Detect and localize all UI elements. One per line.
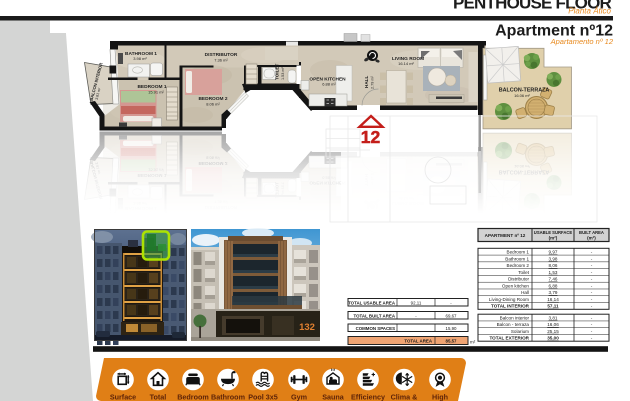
svg-text:3,98: 3,98 [549, 256, 558, 261]
svg-text:COMMON SPACES: COMMON SPACES [356, 326, 396, 331]
svg-text:6,88: 6,88 [549, 283, 558, 288]
svg-text:TOTAL AREA: TOTAL AREA [404, 339, 432, 344]
svg-text:16.06 m²: 16.06 m² [514, 93, 530, 98]
svg-text:Solarium: Solarium [511, 329, 529, 334]
svg-text:HALL: HALL [364, 76, 369, 88]
svg-text:TOTAL INTERIOR: TOTAL INTERIOR [491, 304, 530, 309]
svg-text:Bathroom: Bathroom [211, 393, 245, 401]
svg-text:APARTMENT nº 12: APARTMENT nº 12 [485, 233, 526, 238]
svg-text:15.91 m²: 15.91 m² [148, 90, 164, 95]
svg-text:Total: Total [150, 393, 167, 401]
svg-text:Bedroom: Bedroom [177, 393, 209, 401]
svg-text:7,46: 7,46 [549, 277, 558, 282]
svg-text:(m²): (m²) [587, 236, 596, 241]
svg-text:Toilet: Toilet [518, 270, 529, 275]
svg-text:57,11: 57,11 [547, 304, 559, 309]
svg-text:85,57: 85,57 [446, 339, 458, 344]
svg-text:Open kitchen: Open kitchen [502, 283, 530, 288]
svg-text:12: 12 [361, 127, 381, 147]
svg-text:3.98 m²: 3.98 m² [133, 56, 147, 61]
svg-text:3,81: 3,81 [549, 315, 558, 320]
svg-text:TOTAL EXTERIOR: TOTAL EXTERIOR [489, 336, 529, 341]
svg-text:m²: m² [470, 340, 476, 345]
svg-text:TOILET: TOILET [275, 64, 280, 80]
svg-text:Pool 3x5: Pool 3x5 [248, 393, 278, 401]
svg-text:9,97: 9,97 [549, 249, 558, 254]
svg-text:TOTAL USABLE AREA: TOTAL USABLE AREA [348, 300, 396, 305]
svg-text:92,11: 92,11 [411, 300, 422, 305]
svg-text:16,14: 16,14 [547, 297, 559, 302]
svg-text:Bathroom 1: Bathroom 1 [505, 256, 529, 261]
svg-text:Living-Dining Room: Living-Dining Room [489, 297, 529, 302]
svg-text:3,79: 3,79 [549, 290, 558, 295]
svg-text:USABLE SURFACE: USABLE SURFACE [534, 230, 573, 235]
svg-text:Planta Ático: Planta Ático [568, 7, 611, 16]
svg-text:Balcon - terraza: Balcon - terraza [497, 322, 530, 327]
svg-text:Apartamento nº 12: Apartamento nº 12 [550, 37, 614, 46]
svg-text:69,67: 69,67 [446, 313, 458, 318]
svg-text:Efficiency: Efficiency [351, 393, 385, 401]
svg-text:35,00: 35,00 [547, 336, 559, 341]
svg-text:Surface: Surface [110, 393, 136, 401]
svg-text:Hall: Hall [521, 290, 529, 295]
svg-text:1,53: 1,53 [549, 270, 558, 275]
svg-text:8,06: 8,06 [549, 263, 558, 268]
svg-text:Bedroom 1: Bedroom 1 [507, 249, 530, 254]
svg-text:High: High [432, 393, 448, 401]
svg-text:TOTAL BUILT AREA: TOTAL BUILT AREA [354, 313, 396, 318]
svg-text:2.79 m²: 2.79 m² [371, 75, 375, 89]
svg-text:8.06 m²: 8.06 m² [206, 102, 220, 107]
svg-text:1.53 m²: 1.53 m² [281, 66, 285, 80]
svg-text:Gym: Gym [291, 393, 307, 401]
svg-text:16,06: 16,06 [547, 322, 559, 327]
svg-text:BUILT AREA: BUILT AREA [579, 230, 604, 235]
svg-text:16.14 m²: 16.14 m² [398, 61, 414, 66]
svg-text:Balcon interior: Balcon interior [500, 315, 530, 320]
svg-text:7.36 m²: 7.36 m² [214, 58, 228, 63]
svg-text:15,90: 15,90 [446, 326, 458, 331]
svg-text:(m²): (m²) [549, 236, 558, 241]
svg-text:25,15: 25,15 [547, 329, 559, 334]
svg-text:6.88 m²: 6.88 m² [322, 82, 336, 87]
svg-text:Distributor: Distributor [508, 277, 529, 282]
svg-text:Bedroom 2: Bedroom 2 [507, 263, 530, 268]
svg-text:Sauna: Sauna [322, 393, 345, 401]
svg-text:Clima &: Clima & [391, 393, 418, 401]
svg-text:132: 132 [299, 322, 315, 333]
